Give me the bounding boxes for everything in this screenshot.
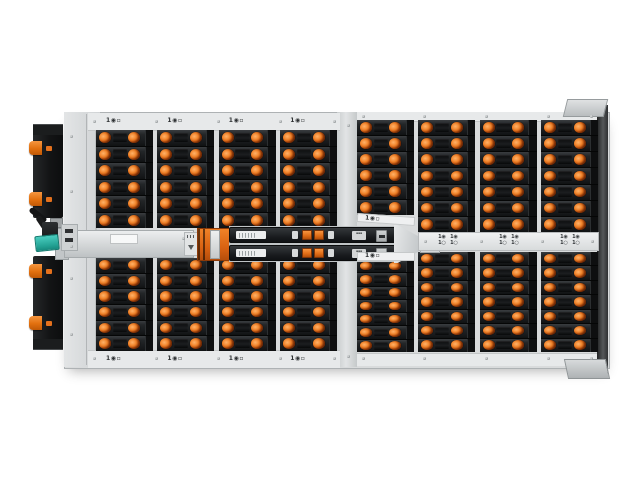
drive-column <box>219 258 276 351</box>
drive-column <box>480 252 537 352</box>
zone-label-bottom: 1◉▫ <box>365 253 380 259</box>
drive-slot <box>174 261 188 270</box>
drive-latch-right <box>313 323 325 333</box>
drive-latch-left <box>222 307 234 317</box>
drive-slot <box>374 342 388 350</box>
drive-slot <box>558 171 572 180</box>
drive-bay <box>480 168 537 184</box>
drive-slot <box>496 254 510 262</box>
drive-bay <box>541 281 598 295</box>
bay-edge <box>467 201 475 216</box>
drive-latch-right <box>251 276 263 286</box>
bay-edge <box>206 274 214 289</box>
bay-edge <box>145 130 153 146</box>
drive-slot <box>558 341 572 349</box>
bay-edge <box>528 120 536 135</box>
drive-latch-right <box>574 187 586 198</box>
drive-bay <box>96 163 153 180</box>
drive-slot <box>374 139 388 148</box>
drive-slot <box>235 182 249 192</box>
drive-slot <box>113 149 127 159</box>
drive-latch-right <box>451 219 463 230</box>
drive-column <box>357 120 414 215</box>
drive-latch-right <box>574 138 586 149</box>
bay-edge <box>267 321 275 336</box>
drive-slot <box>113 215 127 225</box>
drive-latch-right <box>190 165 202 176</box>
mini-label <box>65 238 73 242</box>
drive-latch-right <box>128 338 140 348</box>
drive-bay <box>480 324 537 338</box>
drive-latch-left <box>483 254 495 263</box>
drive-latch-right <box>512 326 524 335</box>
drive-bay <box>157 147 214 164</box>
drive-slot <box>496 283 510 291</box>
bay-edge <box>267 274 275 289</box>
drive-latch-right <box>251 132 263 143</box>
drive-bay <box>418 339 475 352</box>
bay-edge <box>145 258 153 273</box>
drive-latch-right <box>128 276 140 286</box>
drive-slot <box>435 171 449 180</box>
drive-latch-right <box>313 291 325 301</box>
drive-bay <box>280 163 337 180</box>
drive-bay <box>157 180 214 197</box>
drive-slot <box>113 261 127 270</box>
drive-slot <box>435 220 449 229</box>
drive-latch-left <box>99 182 111 193</box>
led-bottom: 1○ <box>509 240 521 246</box>
drive-bay <box>418 217 475 232</box>
drive-slot <box>297 133 311 143</box>
screw <box>590 115 593 118</box>
bay-zone-label: 1◉▫ <box>167 118 182 124</box>
screw <box>347 124 350 127</box>
drive-latch-right <box>512 297 524 306</box>
bay-edge <box>267 289 275 304</box>
drive-bay <box>418 136 475 152</box>
drive-bay <box>280 130 337 147</box>
bay-edge <box>145 147 153 163</box>
drive-bay <box>280 196 337 213</box>
drive-latch-right <box>190 323 202 333</box>
drive-latch-left <box>160 132 172 143</box>
drive-slot <box>235 166 249 176</box>
drive-latch-right <box>389 302 401 311</box>
drive-slot <box>174 149 188 159</box>
drive-slot <box>297 166 311 176</box>
drive-bay <box>96 305 153 321</box>
drive-latch-left <box>99 149 111 160</box>
screw <box>70 135 73 138</box>
drive-slot <box>435 298 449 306</box>
drive-latch-right <box>128 198 140 209</box>
drive-slot <box>113 276 127 285</box>
drive-slot <box>297 199 311 209</box>
drive-latch-right <box>574 297 586 306</box>
drive-slot <box>374 275 388 283</box>
drive-latch-left <box>483 122 495 133</box>
drive-latch-left <box>360 315 372 324</box>
bay-edge <box>145 213 153 229</box>
drive-slot <box>235 308 249 317</box>
drive-latch-right <box>389 186 401 197</box>
bay-edge <box>206 163 214 179</box>
drive-latch-right <box>389 315 401 324</box>
drive-bay <box>480 136 537 152</box>
drive-latch-right <box>251 291 263 301</box>
drive-latch-left <box>99 338 111 348</box>
drive-latch-right <box>574 268 586 277</box>
bay-edge <box>206 336 214 351</box>
drive-latch-left <box>222 198 234 209</box>
drive-bay <box>357 136 414 152</box>
led-indicator: 1◉1○ <box>509 234 521 246</box>
drive-slot <box>174 276 188 285</box>
drive-bay <box>157 289 214 305</box>
bay-edge <box>206 213 214 229</box>
bay-edge <box>528 185 536 200</box>
barcode-label <box>236 231 266 239</box>
bay-edge <box>406 184 414 199</box>
drive-bay <box>157 163 214 180</box>
drive-latch-right <box>574 254 586 263</box>
drive-bay <box>480 252 537 266</box>
bay-edge <box>206 180 214 196</box>
bay-edge <box>590 252 598 265</box>
drive-latch-right <box>574 219 586 230</box>
drive-slot <box>496 220 510 229</box>
zone-label-top: 1◉▫ <box>365 215 381 222</box>
drive-bay <box>157 213 214 229</box>
screw <box>591 240 594 243</box>
drive-slot <box>297 292 311 301</box>
drive-latch-right <box>512 171 524 182</box>
drive-latch-left <box>222 165 234 176</box>
drive-latch-left <box>160 260 172 270</box>
bay-edge <box>590 310 598 323</box>
bay-edge <box>206 321 214 336</box>
bay-edge <box>467 168 475 183</box>
bay-zone-label: 1◉▫ <box>229 356 244 362</box>
screw <box>155 120 158 123</box>
drive-latch-left <box>283 338 295 348</box>
drive-latch-left <box>544 154 556 165</box>
bay-edge <box>206 289 214 304</box>
drive-latch-right <box>574 122 586 133</box>
bay-edge <box>406 313 414 325</box>
drive-latch-right <box>389 288 401 297</box>
drive-latch-left <box>283 276 295 286</box>
drive-slot <box>496 269 510 277</box>
drive-slot <box>113 182 127 192</box>
drive-bay <box>219 196 276 213</box>
drive-latch-right <box>389 262 401 271</box>
drive-bay <box>541 266 598 280</box>
drive-latch-right <box>190 149 202 160</box>
bay-edge <box>145 196 153 212</box>
barcode-label <box>236 249 266 257</box>
drive-latch-left <box>544 171 556 182</box>
drive-latch-right <box>512 254 524 263</box>
drive-bay <box>480 185 537 201</box>
led-bottom: 1○ <box>497 240 509 246</box>
drive-bay <box>418 310 475 324</box>
module-fins <box>198 229 206 260</box>
drive-bay <box>357 184 414 200</box>
drive-slot <box>435 283 449 291</box>
drive-slot <box>558 123 572 132</box>
bay-edge <box>467 185 475 200</box>
drive-latch-left <box>99 132 111 143</box>
drive-bay <box>480 201 537 217</box>
drive-latch-right <box>389 122 401 133</box>
drive-slot <box>374 329 388 337</box>
screw <box>70 190 73 193</box>
bay-edge <box>590 120 598 135</box>
drive-slot <box>374 203 388 212</box>
drive-latch-left <box>99 307 111 317</box>
drive-latch-left <box>99 276 111 286</box>
bay-edge <box>406 273 414 285</box>
drive-slot <box>235 276 249 285</box>
drive-bay <box>541 310 598 324</box>
screw <box>93 120 96 123</box>
screw <box>423 115 426 118</box>
ear-cap <box>33 339 63 350</box>
drive-bay <box>96 321 153 337</box>
drive-slot <box>435 187 449 196</box>
drive-bay <box>480 217 537 232</box>
bay-edge <box>528 252 536 265</box>
drive-latch-left <box>544 122 556 133</box>
drive-slot <box>435 155 449 164</box>
drive-latch-left <box>283 182 295 193</box>
drive-slot <box>297 261 311 270</box>
drive-latch-left <box>544 268 556 277</box>
drive-latch-left <box>421 122 433 133</box>
drive-latch-right <box>512 283 524 292</box>
orange-release-tab <box>29 264 42 278</box>
drive-latch-left <box>222 338 234 348</box>
drive-slot <box>235 261 249 270</box>
drive-latch-right <box>313 165 325 176</box>
bay-edge <box>528 339 536 352</box>
rating-label: ▪▪▪ <box>352 231 366 240</box>
drive-latch-left <box>421 154 433 165</box>
drive-latch-left <box>360 302 372 311</box>
bay-edge <box>467 252 475 265</box>
bay-edge <box>329 130 337 146</box>
drive-bay <box>357 313 414 326</box>
bay-edge <box>406 326 414 338</box>
drive-bay <box>418 120 475 136</box>
drive-slot <box>113 339 127 348</box>
bay-edge <box>406 340 414 352</box>
tiny-icons <box>187 235 195 238</box>
module-label-strip <box>210 230 220 259</box>
drive-bay <box>96 196 153 213</box>
bay-edge <box>467 339 475 352</box>
drive-column <box>357 260 414 352</box>
drive-bay <box>357 326 414 339</box>
bay-edge <box>528 295 536 308</box>
screw <box>480 240 483 243</box>
bay-edge <box>406 287 414 299</box>
drive-slot <box>435 312 449 320</box>
drive-slot <box>374 262 388 270</box>
screw <box>362 357 365 360</box>
drive-latch-right <box>574 154 586 165</box>
drive-latch-left <box>283 132 295 143</box>
drive-bay <box>418 266 475 280</box>
bay-edge <box>145 321 153 336</box>
drive-latch-left <box>160 323 172 333</box>
drive-bay <box>96 289 153 305</box>
drive-latch-left <box>483 340 495 349</box>
bay-edge <box>590 185 598 200</box>
drive-latch-left <box>283 323 295 333</box>
drive-latch-left <box>483 219 495 230</box>
drive-slot <box>496 327 510 335</box>
drive-latch-right <box>451 203 463 214</box>
drive-latch-left <box>99 165 111 176</box>
drive-column <box>96 130 153 228</box>
drive-slot <box>174 182 188 192</box>
drive-bay <box>157 130 214 147</box>
bay-edge <box>590 266 598 279</box>
drive-latch-left <box>544 283 556 292</box>
drive-slot <box>174 215 188 225</box>
drive-latch-right <box>251 215 263 226</box>
bay-edge <box>267 180 275 196</box>
drive-latch-left <box>360 202 372 213</box>
led-bottom: 1○ <box>436 240 448 246</box>
drive-latch-left <box>483 171 495 182</box>
bay-zone-label: 1◉▫ <box>106 118 121 124</box>
orange-marker <box>46 321 52 326</box>
drive-latch-left <box>544 138 556 149</box>
drive-latch-right <box>128 323 140 333</box>
screw <box>155 357 158 360</box>
drive-latch-right <box>128 132 140 143</box>
drive-bay <box>96 180 153 197</box>
bay-edge <box>528 168 536 183</box>
drive-latch-left <box>99 260 111 270</box>
drive-column <box>541 120 598 232</box>
drive-slot <box>235 215 249 225</box>
screw <box>182 237 185 240</box>
bay-zone-label: 1◉▫ <box>229 118 244 124</box>
bay-zone-label: 1◉▫ <box>290 356 305 362</box>
drive-bay <box>219 130 276 147</box>
drive-latch-right <box>313 182 325 193</box>
drive-slot <box>496 203 510 212</box>
drive-latch-left <box>421 312 433 321</box>
bay-edge <box>145 274 153 289</box>
drive-column <box>219 130 276 228</box>
io-module-a: ▪▪▪ <box>229 227 396 243</box>
led-bottom: 1○ <box>570 240 582 246</box>
bay-edge <box>406 260 414 272</box>
button-white <box>328 231 334 239</box>
bay-edge <box>528 136 536 151</box>
screw <box>333 120 336 123</box>
drive-bay <box>96 147 153 164</box>
drive-bay <box>541 201 598 217</box>
drive-bay <box>96 336 153 351</box>
drive-slot <box>496 139 510 148</box>
drive-slot <box>113 133 127 143</box>
led-indicator: 1◉1○ <box>436 234 448 246</box>
led-indicator: 1◉1○ <box>558 234 570 246</box>
drive-latch-right <box>389 138 401 149</box>
warning-triangle-icon <box>188 245 194 250</box>
bay-edge <box>406 120 414 135</box>
drive-slot <box>174 166 188 176</box>
drive-latch-left <box>283 307 295 317</box>
drive-slot <box>297 215 311 225</box>
drive-latch-right <box>389 202 401 213</box>
drive-bay <box>418 185 475 201</box>
drive-latch-left <box>160 215 172 226</box>
drive-latch-left <box>360 154 372 165</box>
bay-edge <box>406 152 414 167</box>
drive-bay <box>96 274 153 290</box>
bay-zone-label: 1◉▫ <box>290 118 305 124</box>
drive-latch-right <box>574 340 586 349</box>
drive-latch-right <box>313 276 325 286</box>
bay-edge <box>267 196 275 212</box>
drive-latch-right <box>574 203 586 214</box>
drive-slot <box>496 341 510 349</box>
drive-latch-right <box>190 260 202 270</box>
screw <box>279 120 282 123</box>
drive-bay <box>219 274 276 290</box>
drive-bay <box>157 274 214 290</box>
drive-slot <box>496 298 510 306</box>
bay-edge <box>206 130 214 146</box>
drive-latch-left <box>483 297 495 306</box>
drive-latch-left <box>160 198 172 209</box>
drive-bay <box>480 281 537 295</box>
drive-slot <box>174 323 188 332</box>
drive-latch-right <box>389 154 401 165</box>
drive-latch-left <box>360 328 372 337</box>
drive-latch-right <box>451 297 463 306</box>
drive-slot <box>113 323 127 332</box>
drive-bay <box>219 321 276 337</box>
drive-bay <box>541 185 598 201</box>
bay-edge <box>467 310 475 323</box>
drive-latch-left <box>421 171 433 182</box>
drive-latch-right <box>190 276 202 286</box>
bay-edge <box>528 266 536 279</box>
drive-latch-left <box>283 291 295 301</box>
bay-edge <box>267 305 275 320</box>
drive-latch-right <box>128 307 140 317</box>
bay-edge <box>145 180 153 196</box>
drive-latch-left <box>360 275 372 284</box>
drive-bay <box>418 168 475 184</box>
drive-latch-right <box>313 132 325 143</box>
drive-latch-left <box>421 326 433 335</box>
drive-latch-right <box>451 254 463 263</box>
left-ear-bottom <box>33 256 63 350</box>
screw <box>347 355 350 358</box>
bay-edge <box>329 289 337 304</box>
bay-edge <box>528 324 536 337</box>
